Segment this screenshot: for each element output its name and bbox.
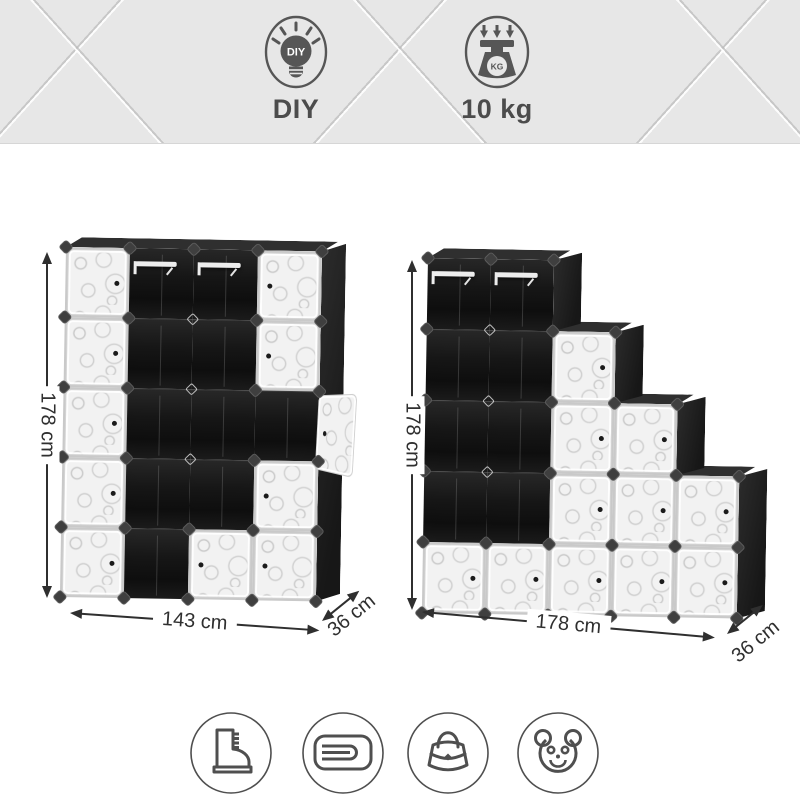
- boot-icon: [189, 711, 273, 795]
- handbag-icon: [406, 711, 490, 795]
- door-knob: [262, 563, 267, 568]
- cube-open-cell: [193, 249, 258, 320]
- scale-badge-text: KG: [491, 62, 504, 72]
- cube-door: [258, 322, 319, 389]
- cube-door-cell: [61, 457, 126, 528]
- height-dimension-right-label: 178 cm: [400, 396, 425, 474]
- bulb-text: DIY: [287, 47, 306, 59]
- cube-door-cell: [552, 331, 616, 403]
- door-knob: [722, 580, 727, 585]
- folded-towel-icon: [301, 711, 385, 795]
- cube-door: [63, 459, 124, 526]
- cube-door: [424, 544, 484, 612]
- panel-seam: [520, 337, 522, 398]
- feature-diy: DIY DIY: [231, 10, 361, 125]
- cube-door: [254, 532, 315, 599]
- cube-door-cell: [188, 529, 253, 600]
- cube-open-cell: [129, 248, 194, 319]
- door-knob: [598, 507, 603, 512]
- cube-door: [554, 333, 614, 401]
- panel-seam: [519, 408, 521, 469]
- door-knob: [264, 493, 269, 498]
- cube-open-cell: [423, 471, 487, 543]
- cube-open-cell: [427, 258, 491, 330]
- cube-open-cell: [254, 390, 319, 461]
- cube-open-cell: [128, 318, 193, 389]
- cube-door: [552, 404, 612, 472]
- panel-seam: [221, 466, 223, 526]
- door-knob: [600, 365, 605, 370]
- staircase-organizer-illustration: [422, 258, 743, 618]
- cube-door: [551, 475, 611, 543]
- cube-open-cell: [489, 330, 553, 402]
- door-knob: [659, 579, 664, 584]
- product-infographic: DIY DIY KG: [0, 0, 800, 800]
- cube-door-cell: [62, 387, 127, 458]
- cube-door: [64, 389, 125, 456]
- height-dimension-left-label: 178 cm: [35, 386, 60, 464]
- door-knob: [323, 430, 327, 435]
- door-knob: [724, 509, 729, 514]
- cube-door-cell: [65, 247, 130, 318]
- cube-door-cell: [64, 317, 129, 388]
- width-dimension-left-label: 143 cm: [152, 606, 237, 637]
- cube-door: [614, 476, 674, 544]
- door-knob: [599, 436, 604, 441]
- panel-seam: [158, 395, 160, 455]
- panel-seam: [157, 465, 159, 525]
- cube-open-cell: [487, 401, 551, 473]
- cube-door: [255, 462, 316, 529]
- cube-door: [487, 545, 547, 613]
- cube-door-cell: [613, 403, 677, 475]
- cube-door: [62, 529, 123, 596]
- width-dimension-left: 143 cm: [70, 607, 320, 636]
- hanging-rail: [497, 272, 537, 278]
- hanging-rail: [136, 261, 177, 267]
- cube-door-cell: [549, 473, 613, 545]
- door-knob: [266, 353, 271, 358]
- diy-label: DIY: [231, 94, 361, 125]
- panel-seam: [286, 397, 288, 457]
- cube-open-cell: [426, 329, 490, 401]
- closet-organizer-illustration: [60, 247, 322, 601]
- cube-door: [613, 547, 673, 615]
- panel-seam: [455, 478, 457, 539]
- cube-door: [66, 319, 127, 386]
- door-knob: [198, 562, 203, 567]
- cube-door: [615, 405, 675, 473]
- feature-max-load: KG 10 kg: [432, 10, 562, 125]
- door-knob: [114, 280, 119, 285]
- cube-door-cell: [612, 474, 676, 546]
- cube-door-cell: [257, 250, 322, 321]
- door-knob: [111, 490, 116, 495]
- cube-door-cell: [422, 542, 486, 614]
- height-dimension-right: 178 cm: [402, 260, 422, 610]
- door-knob: [596, 578, 601, 583]
- teddy-bear-icon: [516, 711, 600, 795]
- cube-open-cell: [189, 459, 254, 530]
- cube-door: [677, 477, 737, 545]
- cube-open-cell: [192, 319, 257, 390]
- cube-door: [676, 548, 736, 616]
- door-knob: [109, 560, 114, 565]
- panel-seam: [457, 336, 459, 397]
- door-knob: [267, 283, 272, 288]
- hanging-rail: [434, 271, 474, 277]
- cube-door: [190, 531, 251, 598]
- panel-seam: [160, 325, 162, 385]
- door-knob: [533, 577, 538, 582]
- door-knob: [112, 420, 117, 425]
- cube-door-cell: [60, 527, 125, 598]
- cube-open-cell: [126, 388, 191, 459]
- cube-open-cell: [486, 472, 550, 544]
- cube-door-cell: [485, 543, 549, 615]
- height-dimension-left: 178 cm: [37, 252, 57, 598]
- feature-banner: DIY DIY KG: [0, 0, 800, 144]
- door-knob: [662, 437, 667, 442]
- cube-door-cell: [253, 460, 318, 531]
- cube-door-cell: [256, 320, 321, 391]
- door-knob: [113, 350, 118, 355]
- panel-seam: [456, 407, 458, 468]
- panel-seam: [224, 326, 226, 386]
- cube-door: [67, 249, 128, 316]
- door-knob: [470, 576, 475, 581]
- cube-open-cell: [190, 389, 255, 460]
- weight-scale-icon: KG: [457, 10, 537, 92]
- diy-lightbulb-icon: DIY: [257, 10, 335, 92]
- cube-door: [550, 546, 610, 614]
- cube-door-cell: [674, 546, 738, 618]
- door-knob: [661, 508, 666, 513]
- cube-door-cell: [548, 544, 612, 616]
- panel-seam: [156, 535, 158, 595]
- panel-seam: [518, 479, 520, 540]
- hanging-rail: [200, 262, 241, 268]
- cube-door-cell: [550, 402, 614, 474]
- cube-door: [259, 252, 320, 319]
- cube-open-cell: [124, 528, 189, 599]
- panel-seam: [222, 396, 224, 456]
- cube-door-cell: [675, 475, 739, 547]
- cube-open-cell: [490, 259, 554, 331]
- cube-door-cell: [611, 545, 675, 617]
- cube-open-cell: [424, 400, 488, 472]
- cube-open-cell: [125, 458, 190, 529]
- max-load-label: 10 kg: [432, 94, 562, 125]
- cube-door-cell: [252, 530, 317, 601]
